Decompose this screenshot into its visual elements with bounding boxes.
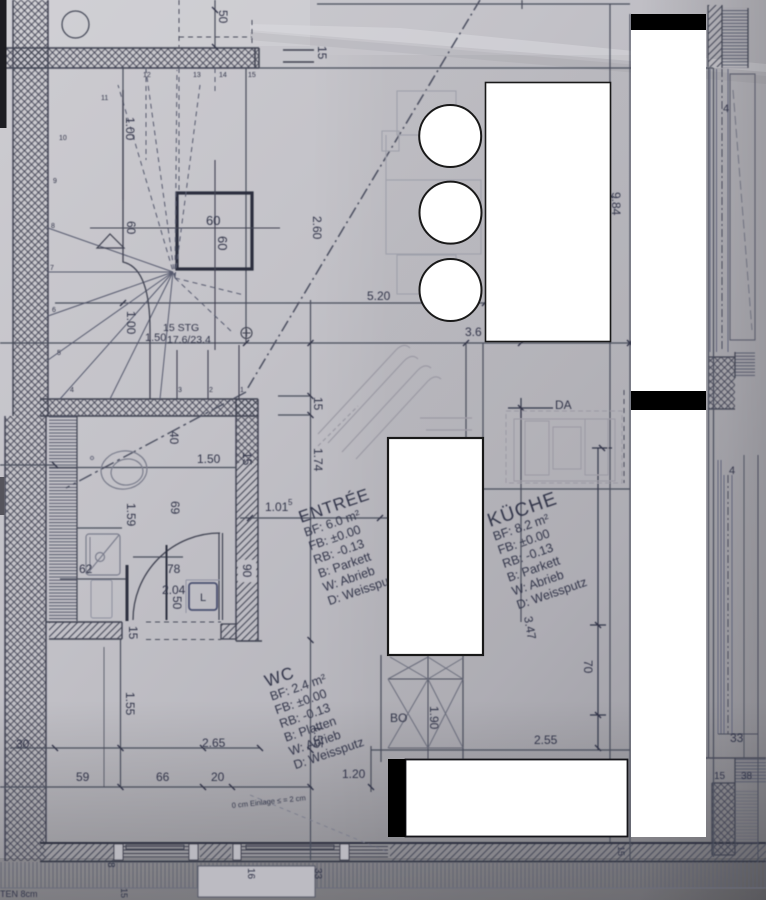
svg-text:TEN 8cm: TEN 8cm xyxy=(0,889,38,899)
svg-text:60: 60 xyxy=(124,221,138,235)
svg-text:7: 7 xyxy=(50,265,54,272)
svg-text:15: 15 xyxy=(714,771,726,782)
svg-text:1: 1 xyxy=(240,387,244,394)
svg-text:15: 15 xyxy=(248,72,256,79)
svg-text:2.60: 2.60 xyxy=(310,216,324,240)
svg-text:L: L xyxy=(200,592,206,604)
svg-text:3.6: 3.6 xyxy=(465,325,482,339)
svg-text:16: 16 xyxy=(245,868,256,880)
svg-text:2.55: 2.55 xyxy=(534,733,558,747)
svg-text:4: 4 xyxy=(729,465,735,477)
svg-text:33: 33 xyxy=(312,868,323,880)
svg-text:2.04: 2.04 xyxy=(162,583,186,597)
svg-text:5: 5 xyxy=(288,498,293,507)
svg-text:66: 66 xyxy=(156,770,170,784)
svg-text:17.6/23.4: 17.6/23.4 xyxy=(167,334,211,346)
svg-text:11: 11 xyxy=(101,95,108,102)
svg-text:1.74: 1.74 xyxy=(311,448,325,472)
svg-text:4: 4 xyxy=(723,103,729,115)
svg-text:15: 15 xyxy=(311,397,325,411)
svg-text:2: 2 xyxy=(209,387,213,394)
svg-text:20: 20 xyxy=(211,770,225,784)
svg-text:78: 78 xyxy=(167,562,181,576)
svg-text:1.01: 1.01 xyxy=(265,500,289,514)
svg-text:1.20: 1.20 xyxy=(342,767,366,781)
svg-text:15: 15 xyxy=(616,846,626,856)
svg-text:50: 50 xyxy=(216,10,230,24)
svg-text:60: 60 xyxy=(215,236,230,250)
svg-text:15: 15 xyxy=(315,46,329,60)
svg-text:90: 90 xyxy=(240,564,254,578)
svg-text:69: 69 xyxy=(168,501,182,515)
svg-text:6: 6 xyxy=(52,307,56,314)
svg-text:8: 8 xyxy=(105,862,116,868)
svg-text:DA: DA xyxy=(555,398,572,412)
svg-text:70: 70 xyxy=(581,660,595,674)
svg-text:14: 14 xyxy=(219,72,227,79)
svg-text:1.55: 1.55 xyxy=(311,725,325,749)
svg-text:5.20: 5.20 xyxy=(367,289,391,303)
svg-text:60: 60 xyxy=(206,213,220,228)
svg-text:1.50: 1.50 xyxy=(145,332,166,344)
svg-text:40: 40 xyxy=(167,431,181,445)
svg-text:1.90: 1.90 xyxy=(427,706,441,730)
svg-text:1.00: 1.00 xyxy=(123,117,137,141)
svg-text:1.55: 1.55 xyxy=(123,692,137,716)
svg-text:59: 59 xyxy=(76,770,90,784)
svg-text:15: 15 xyxy=(126,626,140,640)
svg-text:1.00: 1.00 xyxy=(124,311,138,335)
svg-text:5: 5 xyxy=(57,350,61,357)
svg-text:8: 8 xyxy=(51,223,55,230)
svg-text:4: 4 xyxy=(70,387,74,394)
svg-text:10: 10 xyxy=(59,135,67,142)
svg-text:BO: BO xyxy=(390,711,407,725)
svg-text:1.59: 1.59 xyxy=(124,503,138,527)
svg-text:30: 30 xyxy=(16,737,30,751)
svg-text:33: 33 xyxy=(730,731,744,745)
svg-text:2.65: 2.65 xyxy=(202,736,226,750)
svg-text:13: 13 xyxy=(193,72,201,79)
svg-text:12: 12 xyxy=(143,72,151,79)
svg-text:3: 3 xyxy=(178,387,182,394)
svg-text:62: 62 xyxy=(79,562,93,576)
svg-text:38: 38 xyxy=(741,771,753,782)
svg-text:15: 15 xyxy=(240,452,254,466)
svg-text:15 STG: 15 STG xyxy=(163,322,199,334)
svg-text:9: 9 xyxy=(53,178,57,185)
svg-text:1.50: 1.50 xyxy=(197,452,221,466)
svg-text:15: 15 xyxy=(119,888,129,898)
svg-text:50: 50 xyxy=(170,596,184,610)
